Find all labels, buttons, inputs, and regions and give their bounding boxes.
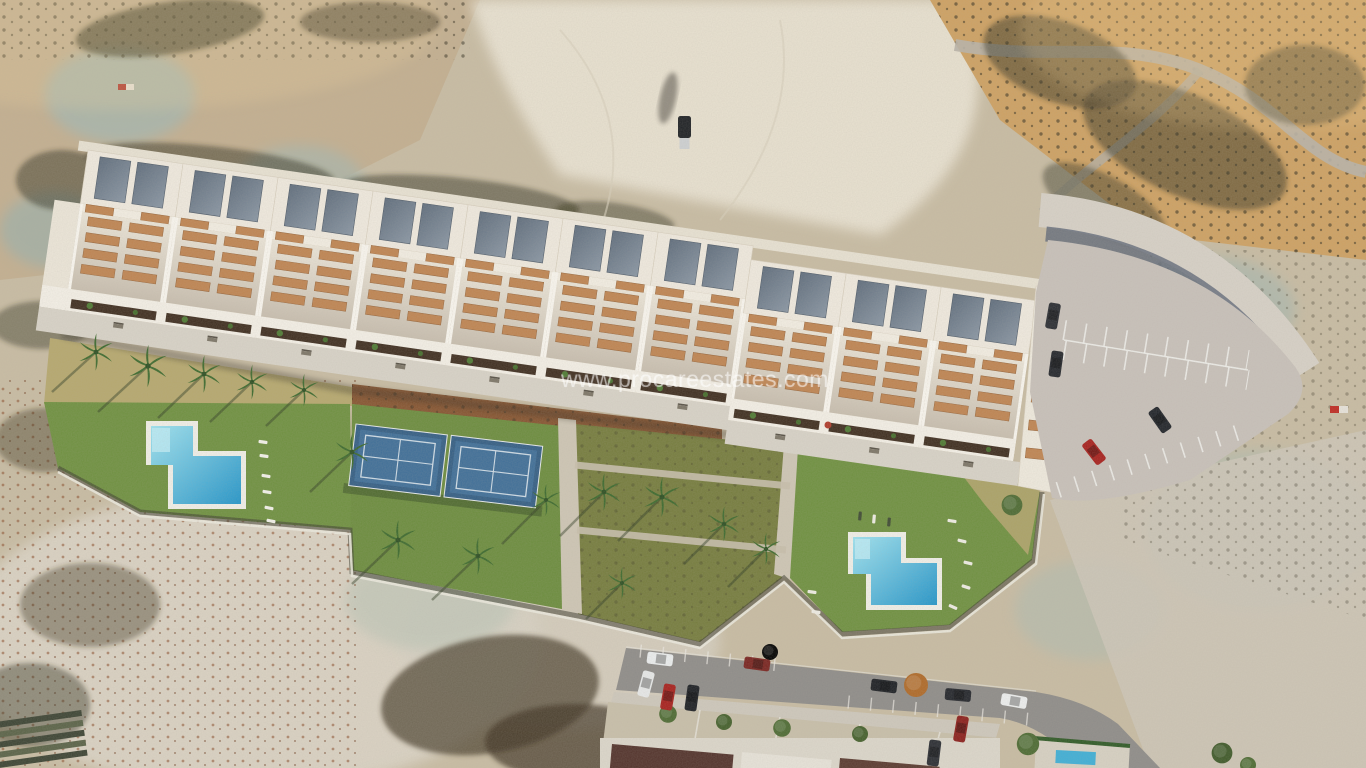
watermark: www.procareestates.com xyxy=(561,366,821,393)
aerial-development-render: www.procareestates.com xyxy=(0,0,1366,768)
